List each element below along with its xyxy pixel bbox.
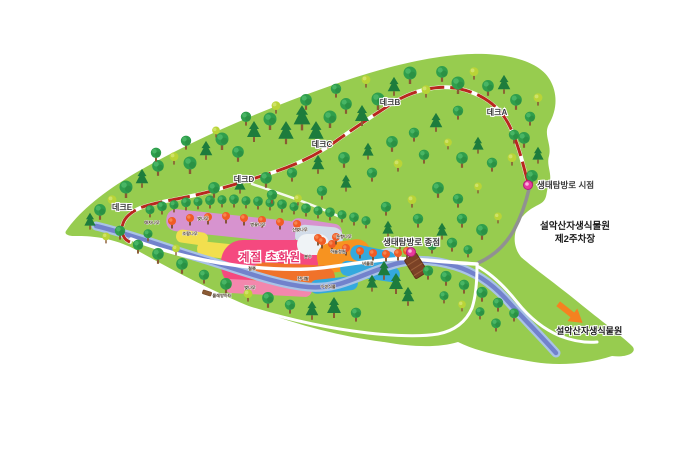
label-deck-b: 데크B — [380, 97, 401, 107]
label-garden-zone: 벚나무 — [197, 215, 209, 222]
label-garden-title: 계절 초화원 — [239, 250, 301, 264]
label-garden-zone: 하늘정원 — [330, 248, 346, 255]
label-garden-zone: 철쭉 — [248, 265, 256, 272]
tree-icon — [102, 233, 110, 244]
label-deck-d: 데크D — [234, 174, 255, 184]
label-deck-e: 데크E — [112, 202, 133, 212]
map-canvas: 데크A데크B데크C데크D데크E생태탐방로 시점생태탐방로 종점설악산자생식물원제… — [0, 0, 700, 450]
label-garden-zone: 벚나무 — [244, 284, 256, 291]
label-garden-exit: 설악산자생식물원 — [556, 325, 622, 336]
label-deck-c: 데크C — [312, 139, 333, 149]
label-garden-zone: 물레방아터 — [212, 292, 231, 299]
label-parking-line2: 제2주차장 — [555, 233, 596, 245]
trail-start-marker — [524, 181, 533, 190]
label-trail-start: 생태탐방로 시점 — [537, 180, 594, 190]
park-map: 데크A데크B데크C데크D데크E생태탐방로 시점생태탐방로 종점설악산자생식물원제… — [0, 0, 700, 450]
label-parking-line1: 설악산자생식물원 — [540, 220, 610, 232]
label-garden-zone: 눈향나무 — [336, 233, 352, 240]
label-garden-zone: 분수 — [304, 253, 312, 260]
label-garden-zone: 조팝나무 — [182, 230, 198, 237]
label-trail-end: 생태탐방로 종점 — [383, 237, 440, 247]
tree-icon — [151, 148, 161, 162]
label-garden-zone: 수생식물 — [320, 283, 336, 290]
label-deck-a: 데크A — [487, 107, 508, 117]
label-garden-zone: 매자나무 — [144, 219, 160, 226]
label-garden-zone: 산벚나무 — [292, 226, 308, 233]
bench — [202, 290, 212, 297]
label-garden-zone: 잔디밭 — [297, 275, 309, 282]
label-garden-zone: 병꽃나무 — [250, 221, 266, 228]
trail-end-marker — [407, 248, 416, 257]
label-garden-zone: 버들류 — [362, 260, 374, 267]
